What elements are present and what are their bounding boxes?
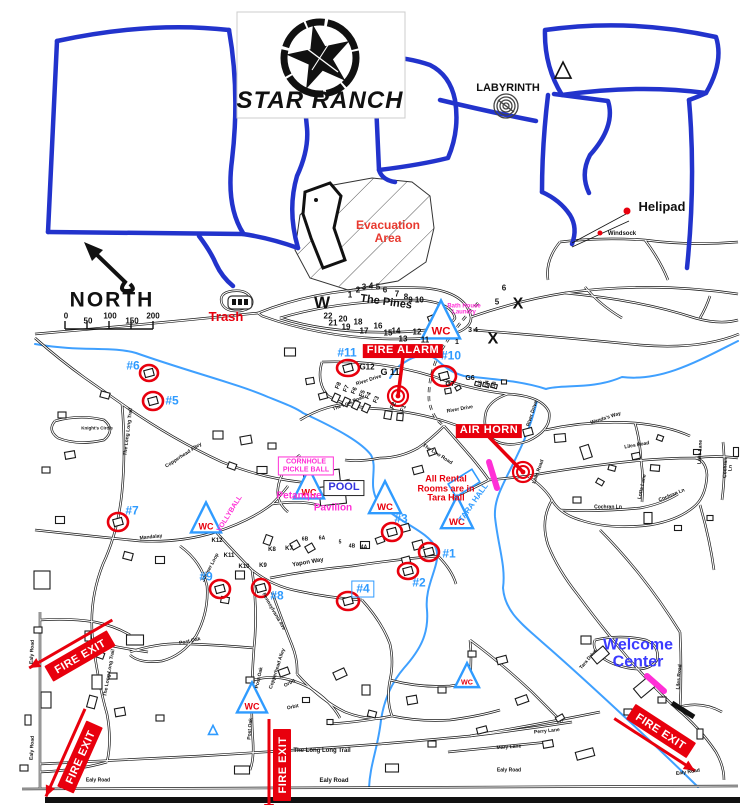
site-cabin xyxy=(256,583,267,592)
building xyxy=(412,465,423,474)
building xyxy=(42,467,50,473)
building xyxy=(109,673,117,679)
site-cabin xyxy=(113,517,124,526)
map-edge xyxy=(45,797,740,803)
building xyxy=(384,410,392,419)
building xyxy=(285,348,296,356)
building xyxy=(694,450,701,455)
building xyxy=(438,687,446,693)
trash-icon xyxy=(228,296,252,309)
building xyxy=(213,431,223,439)
building xyxy=(235,766,250,774)
building xyxy=(596,478,605,486)
building xyxy=(34,571,50,589)
building xyxy=(20,765,28,771)
wc-label: WC xyxy=(449,517,465,528)
building xyxy=(361,542,370,549)
building xyxy=(707,516,713,521)
fire-exit-arrow: FIRE EXIT xyxy=(264,719,291,805)
building xyxy=(305,543,315,553)
building xyxy=(554,434,566,443)
site-cabin xyxy=(144,368,155,377)
building xyxy=(156,557,165,564)
triangle-icon xyxy=(555,62,571,78)
site-cabin xyxy=(343,363,354,372)
building xyxy=(515,695,529,706)
wc-label: WC xyxy=(302,487,317,497)
map-canvas: WCWCWCWCWCWCWCFIRE EXITFIRE EXITFIRE EXI… xyxy=(0,0,743,805)
building xyxy=(697,729,703,739)
building xyxy=(445,388,452,394)
building xyxy=(156,715,164,721)
building xyxy=(542,740,553,749)
helipad-icon xyxy=(572,214,629,247)
building xyxy=(491,383,498,388)
building xyxy=(386,764,399,772)
site-cabin xyxy=(439,371,450,380)
building xyxy=(362,403,371,413)
wc-label: WC xyxy=(461,678,473,687)
building xyxy=(100,391,110,399)
building xyxy=(58,412,66,418)
building xyxy=(631,452,640,460)
buildings xyxy=(20,311,739,774)
building xyxy=(127,635,144,645)
labyrinth-icon xyxy=(494,94,518,118)
building xyxy=(87,695,98,709)
building xyxy=(278,667,290,677)
wc-label: WC xyxy=(199,521,214,531)
building xyxy=(367,710,376,718)
building xyxy=(428,741,436,747)
evacuation-area xyxy=(295,178,434,290)
fire-exit-arrow: FIRE EXIT xyxy=(41,707,107,805)
building xyxy=(675,526,682,531)
building xyxy=(573,497,581,503)
site-cabin xyxy=(215,584,226,593)
building xyxy=(263,535,273,546)
building xyxy=(650,465,659,472)
building xyxy=(268,443,276,449)
building xyxy=(575,748,594,760)
building xyxy=(362,685,370,695)
building xyxy=(427,448,437,456)
highlight-bar xyxy=(489,462,497,488)
building xyxy=(306,377,315,384)
star-ranch-map: STAR RANCH map xyxy=(0,0,743,805)
building xyxy=(608,465,616,472)
building xyxy=(92,675,102,689)
building xyxy=(644,513,652,524)
site-cabin xyxy=(424,547,435,556)
building xyxy=(734,448,739,457)
building xyxy=(290,540,300,550)
building xyxy=(581,636,591,644)
building xyxy=(468,651,476,657)
building xyxy=(658,697,666,703)
windsock-dot xyxy=(598,231,603,236)
building xyxy=(502,380,507,384)
building xyxy=(523,427,534,436)
building xyxy=(240,435,252,445)
triangle-icon xyxy=(209,725,218,734)
fire-exit-label: FIRE EXIT xyxy=(277,736,289,793)
building xyxy=(333,668,347,680)
building xyxy=(227,462,237,470)
north-arrow xyxy=(84,242,133,291)
site-cabin xyxy=(148,396,159,405)
building xyxy=(475,381,482,386)
building xyxy=(455,385,461,391)
building xyxy=(483,382,490,387)
building xyxy=(34,627,42,633)
tara-hall-building xyxy=(448,469,480,497)
star-ranch-logo xyxy=(237,12,405,118)
helipad-dot xyxy=(624,208,631,215)
building xyxy=(496,655,507,664)
building xyxy=(41,692,51,708)
building xyxy=(56,517,65,524)
wc-label: WC xyxy=(245,701,260,711)
wc-label: WC xyxy=(432,326,451,338)
building xyxy=(397,413,404,420)
building xyxy=(352,400,361,410)
building xyxy=(656,435,663,442)
building xyxy=(318,392,327,400)
building xyxy=(114,707,125,717)
building xyxy=(327,720,333,725)
building xyxy=(257,467,267,474)
site-cabin xyxy=(343,596,354,605)
building xyxy=(580,444,593,459)
building xyxy=(406,695,417,705)
building xyxy=(25,715,31,725)
building xyxy=(64,451,75,460)
site-cabin xyxy=(387,527,398,536)
building xyxy=(236,571,245,579)
wc-label: WC xyxy=(377,502,393,513)
building xyxy=(123,551,134,560)
site-cabin xyxy=(403,566,414,575)
building xyxy=(303,698,310,703)
